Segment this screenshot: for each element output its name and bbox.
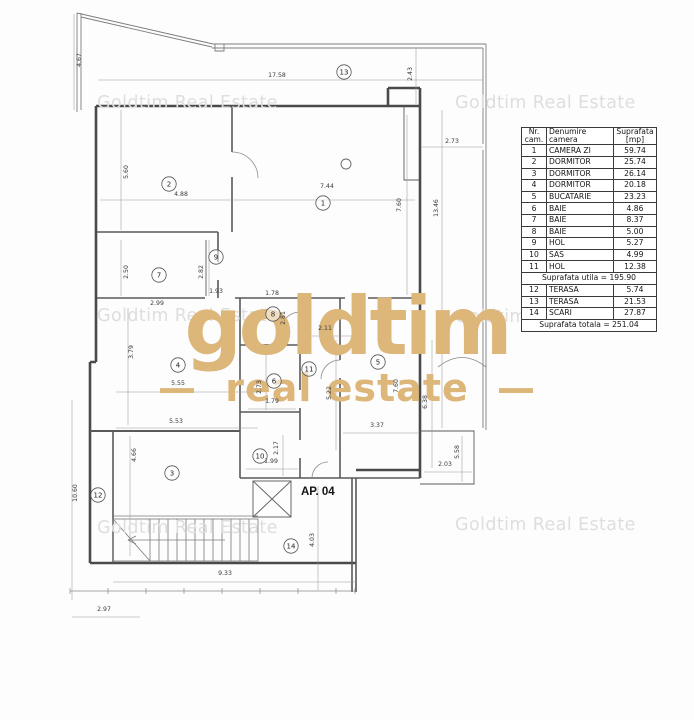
brand-tagline: — real estate — xyxy=(0,369,694,407)
table-cell: 4.86 xyxy=(614,203,657,215)
table-cell: DORMITOR xyxy=(547,168,614,180)
table-row: 9HOL5.27 xyxy=(522,238,657,250)
watermark-text: Goldtim Real Estate xyxy=(455,515,636,535)
table-cell: BUCATARIE xyxy=(547,191,614,203)
tagline-dash-left: — xyxy=(158,366,197,410)
table-cell: 59.74 xyxy=(614,145,657,157)
table-cell: 25.74 xyxy=(614,156,657,168)
table-cell: 21.53 xyxy=(614,296,657,308)
table-cell: 23.23 xyxy=(614,191,657,203)
total-row-cell: Suprafata totala = 251.04 xyxy=(522,319,657,331)
table-cell: BAIE xyxy=(547,203,614,215)
table-row: 3DORMITOR26.14 xyxy=(522,168,657,180)
tagline-dash-right: — xyxy=(497,366,536,410)
table-cell: 11 xyxy=(522,261,547,273)
table-cell: 12 xyxy=(522,284,547,296)
table-cell: CAMERA ZI xyxy=(547,145,614,157)
subtotal-row-cell: Suprafata utila = 195.90 xyxy=(522,272,657,284)
table-row: 10SAS4.99 xyxy=(522,249,657,261)
table-cell: 27.87 xyxy=(614,308,657,320)
watermark-text: Goldtim Real Estate xyxy=(455,93,636,113)
tagline-text: real estate xyxy=(225,366,469,410)
table-cell: HOL xyxy=(547,261,614,273)
table-cell: 7 xyxy=(522,214,547,226)
table-cell: 10 xyxy=(522,249,547,261)
table-row: 13TERASA21.53 xyxy=(522,296,657,308)
table-row: 4DORMITOR20.18 xyxy=(522,180,657,192)
table-cell: SAS xyxy=(547,249,614,261)
room-area-table: Nr. cam. Denumire camera Suprafata [mp] … xyxy=(521,127,657,332)
table-row: 6BAIE4.86 xyxy=(522,203,657,215)
table-cell: 6 xyxy=(522,203,547,215)
table-cell: 4 xyxy=(522,180,547,192)
table-cell: 13 xyxy=(522,296,547,308)
table-row: 5BUCATARIE23.23 xyxy=(522,191,657,203)
col-header-area: Suprafata [mp] xyxy=(614,128,657,145)
apartment-label: AP. 04 xyxy=(301,486,335,498)
table-row: 12TERASA5.74 xyxy=(522,284,657,296)
table-cell: 26.14 xyxy=(614,168,657,180)
balcony-railing xyxy=(70,588,356,594)
watermark-text: Goldtim Real Estate xyxy=(97,93,278,113)
table-cell: 8.37 xyxy=(614,214,657,226)
table-cell: 20.18 xyxy=(614,180,657,192)
table-row: 7BAIE8.37 xyxy=(522,214,657,226)
table-cell: DORMITOR xyxy=(547,156,614,168)
floorplan-page: Goldtim Real Estate Goldtim Real Estate … xyxy=(0,0,694,720)
table-cell: 5.00 xyxy=(614,226,657,238)
subtotal-row: Suprafata utila = 195.90 xyxy=(522,272,657,284)
table-cell: 3 xyxy=(522,168,547,180)
column xyxy=(341,159,351,169)
table-cell: HOL xyxy=(547,238,614,250)
table-cell: 4.99 xyxy=(614,249,657,261)
table-cell: 1 xyxy=(522,145,547,157)
table-cell: TERASA xyxy=(547,284,614,296)
table-cell: 14 xyxy=(522,308,547,320)
col-header-name: Denumire camera xyxy=(547,128,614,145)
table-cell: DORMITOR xyxy=(547,180,614,192)
col-header-nr: Nr. cam. xyxy=(522,128,547,145)
table-cell: 8 xyxy=(522,226,547,238)
total-row: Suprafata totala = 251.04 xyxy=(522,319,657,331)
table-row: 11HOL12.38 xyxy=(522,261,657,273)
table-cell: BAIE xyxy=(547,214,614,226)
table-cell: SCARI xyxy=(547,308,614,320)
table-row: 14SCARI27.87 xyxy=(522,308,657,320)
table-cell: 2 xyxy=(522,156,547,168)
table-cell: 5.74 xyxy=(614,284,657,296)
table-row: 1CAMERA ZI59.74 xyxy=(522,145,657,157)
table-cell: 5.27 xyxy=(614,238,657,250)
table-header-row: Nr. cam. Denumire camera Suprafata [mp] xyxy=(522,128,657,145)
table-row: 8BAIE5.00 xyxy=(522,226,657,238)
table-row: 2DORMITOR25.74 xyxy=(522,156,657,168)
table-cell: 5 xyxy=(522,191,547,203)
table-cell: 9 xyxy=(522,238,547,250)
table-cell: 12.38 xyxy=(614,261,657,273)
table-cell: TERASA xyxy=(547,296,614,308)
elevator-shaft xyxy=(253,481,291,517)
table-cell: BAIE xyxy=(547,226,614,238)
watermark-text: Goldtim Real Estate xyxy=(97,518,278,538)
